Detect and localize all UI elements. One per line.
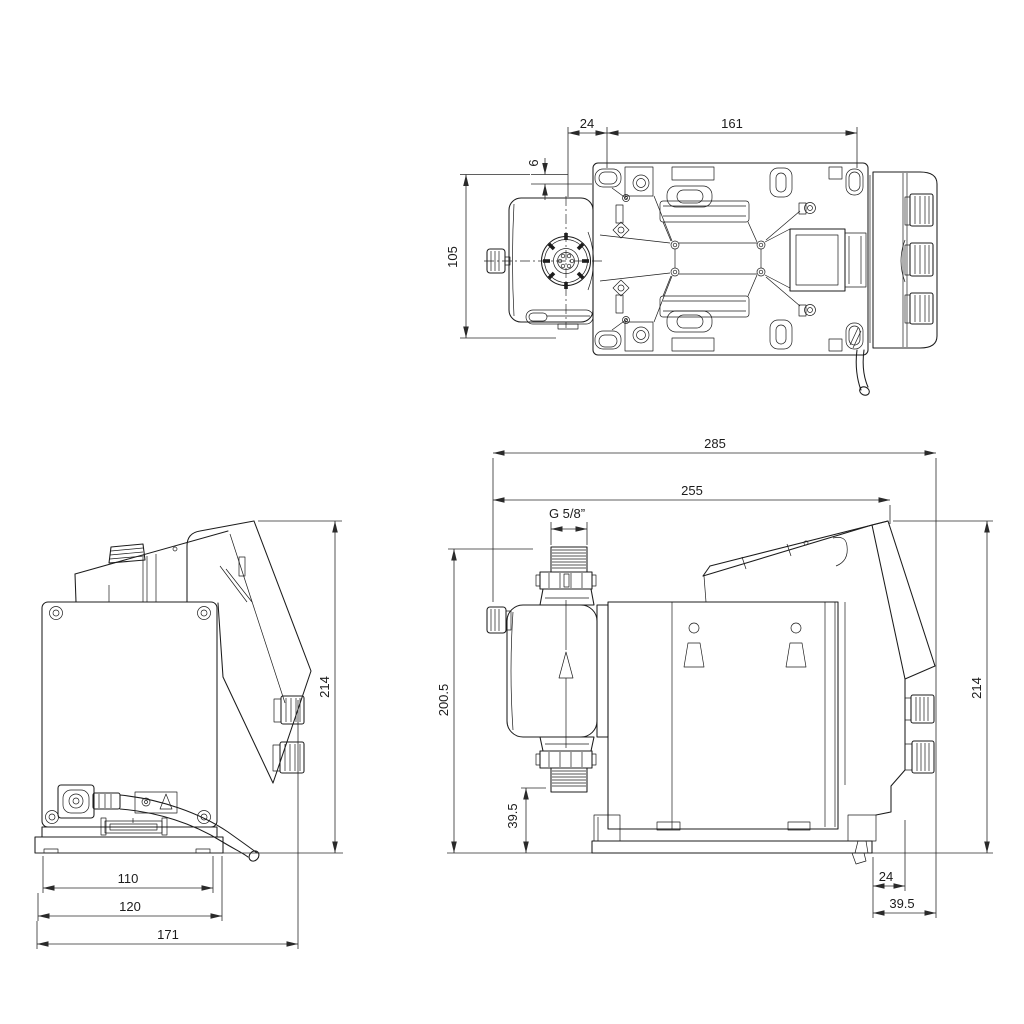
dosing-head-side [487, 547, 608, 792]
dim-back-171: 171 [157, 927, 179, 942]
dim-back-110: 110 [118, 871, 139, 886]
dim-top-105: 105 [445, 246, 460, 268]
dim-side-thread: G 5/8” [549, 506, 585, 521]
dim-top-24: 24 [580, 116, 594, 131]
dimensional-drawing: 24 161 6 105 [0, 0, 1024, 1024]
side-knobs-side [905, 695, 934, 773]
dim-back-120: 120 [119, 899, 141, 914]
top-view-dimensions: 24 161 6 105 [445, 116, 857, 338]
dim-side-24: 24 [879, 869, 893, 884]
side-view: 285 255 G 5/8” 200.5 39.5 214 [436, 436, 993, 918]
mounting-plate-top [588, 163, 868, 355]
vent-valve-knob [487, 607, 506, 633]
dim-top-161: 161 [721, 116, 743, 131]
dim-side-200-5: 200.5 [436, 684, 451, 717]
dim-side-39-5-bottom: 39.5 [889, 896, 914, 911]
control-panel-side [703, 521, 935, 815]
pump-body-side [608, 602, 845, 829]
control-panel-back [187, 521, 311, 783]
flow-direction-arrow [559, 600, 573, 748]
cable-gland-2 [910, 243, 933, 276]
back-panel [42, 602, 261, 863]
technical-drawing-page: 24 161 6 105 [0, 0, 1024, 1024]
dim-top-6: 6 [526, 159, 541, 166]
base-plate-side [592, 815, 876, 864]
motor-end-cap-top [487, 198, 593, 329]
side-knobs-back [273, 696, 304, 773]
pump-top-back [75, 531, 228, 602]
warning-triangle-icon [160, 794, 172, 809]
back-view-dimensions: 110 120 171 214 [37, 521, 342, 949]
dim-side-39-5-left: 39.5 [505, 803, 520, 828]
dim-back-214: 214 [317, 676, 332, 698]
cable-gland-3 [910, 293, 933, 324]
dim-side-285: 285 [704, 436, 726, 451]
warning-label [135, 792, 177, 813]
mains-cable-top [856, 350, 861, 390]
dim-side-214: 214 [969, 677, 984, 699]
dim-side-255: 255 [681, 483, 703, 498]
dosing-head-top [484, 196, 602, 328]
back-view: 110 120 171 214 [35, 521, 343, 949]
top-view: 24 161 6 105 [445, 116, 937, 397]
cable-gland-1 [910, 194, 933, 226]
base-plate-back [35, 827, 343, 853]
